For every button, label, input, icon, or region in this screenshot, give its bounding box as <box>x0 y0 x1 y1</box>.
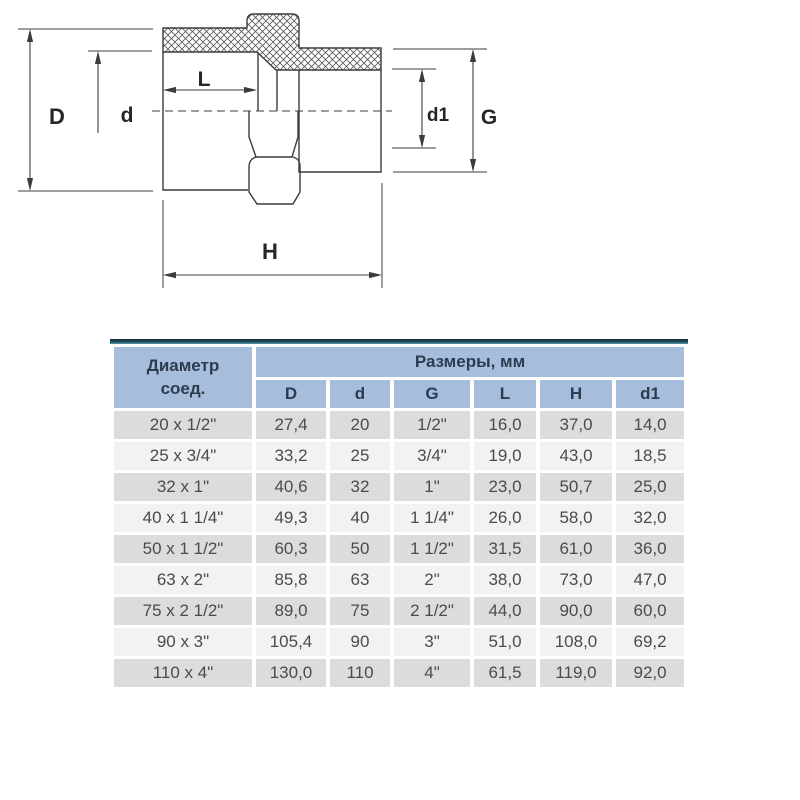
value-cell: 92,0 <box>616 659 684 687</box>
dim-label-D: D <box>49 104 65 129</box>
value-cell: 44,0 <box>474 597 536 625</box>
value-cell: 25,0 <box>616 473 684 501</box>
column-header-L: L <box>474 380 536 408</box>
diameter-header-line1: Диаметр <box>147 356 220 375</box>
value-cell: 1 1/4" <box>394 504 470 532</box>
size-cell: 63 x 2" <box>114 566 252 594</box>
value-cell: 1 1/2" <box>394 535 470 563</box>
size-cell: 20 x 1/2" <box>114 411 252 439</box>
size-cell: 40 x 1 1/4" <box>114 504 252 532</box>
value-cell: 85,8 <box>256 566 326 594</box>
size-cell: 50 x 1 1/2" <box>114 535 252 563</box>
column-group-header-sizes: Размеры, мм <box>256 347 684 377</box>
column-header-G: G <box>394 380 470 408</box>
value-cell: 119,0 <box>540 659 612 687</box>
table-row: 75 x 2 1/2"89,0752 1/2"44,090,060,0 <box>114 597 684 625</box>
value-cell: 63 <box>330 566 390 594</box>
value-cell: 23,0 <box>474 473 536 501</box>
value-cell: 110 <box>330 659 390 687</box>
diameter-header-line2: соед. <box>161 379 206 398</box>
table-body: 20 x 1/2"27,4201/2"16,037,014,025 x 3/4"… <box>114 411 684 687</box>
size-cell: 110 x 4" <box>114 659 252 687</box>
value-cell: 60,3 <box>256 535 326 563</box>
value-cell: 32 <box>330 473 390 501</box>
value-cell: 40,6 <box>256 473 326 501</box>
dimensions-table: Диаметр соед. Размеры, мм D d G L H d1 2… <box>110 339 688 690</box>
product-spec-sheet: D d L d1 <box>0 0 800 800</box>
value-cell: 18,5 <box>616 442 684 470</box>
value-cell: 51,0 <box>474 628 536 656</box>
dimensions-data-table: Диаметр соед. Размеры, мм D d G L H d1 2… <box>110 344 688 690</box>
value-cell: 26,0 <box>474 504 536 532</box>
value-cell: 14,0 <box>616 411 684 439</box>
value-cell: 43,0 <box>540 442 612 470</box>
dim-label-L: L <box>198 68 211 91</box>
value-cell: 47,0 <box>616 566 684 594</box>
value-cell: 49,3 <box>256 504 326 532</box>
dimension-H <box>163 183 382 288</box>
dim-label-d1: d1 <box>427 105 450 126</box>
value-cell: 25 <box>330 442 390 470</box>
table-row: 90 x 3"105,4903"51,0108,069,2 <box>114 628 684 656</box>
column-header-diameter: Диаметр соед. <box>114 347 252 408</box>
table-row: 63 x 2"85,8632"38,073,047,0 <box>114 566 684 594</box>
value-cell: 27,4 <box>256 411 326 439</box>
value-cell: 40 <box>330 504 390 532</box>
value-cell: 130,0 <box>256 659 326 687</box>
value-cell: 61,5 <box>474 659 536 687</box>
size-cell: 32 x 1" <box>114 473 252 501</box>
value-cell: 20 <box>330 411 390 439</box>
value-cell: 50,7 <box>540 473 612 501</box>
value-cell: 1" <box>394 473 470 501</box>
value-cell: 2" <box>394 566 470 594</box>
value-cell: 108,0 <box>540 628 612 656</box>
dim-label-H: H <box>262 239 278 264</box>
table-row: 20 x 1/2"27,4201/2"16,037,014,0 <box>114 411 684 439</box>
value-cell: 2 1/2" <box>394 597 470 625</box>
value-cell: 58,0 <box>540 504 612 532</box>
value-cell: 90,0 <box>540 597 612 625</box>
value-cell: 90 <box>330 628 390 656</box>
column-header-d: d <box>330 380 390 408</box>
value-cell: 33,2 <box>256 442 326 470</box>
size-cell: 75 x 2 1/2" <box>114 597 252 625</box>
value-cell: 69,2 <box>616 628 684 656</box>
value-cell: 37,0 <box>540 411 612 439</box>
value-cell: 16,0 <box>474 411 536 439</box>
value-cell: 50 <box>330 535 390 563</box>
value-cell: 38,0 <box>474 566 536 594</box>
value-cell: 75 <box>330 597 390 625</box>
dim-label-G: G <box>481 106 497 129</box>
column-header-d1: d1 <box>616 380 684 408</box>
table-header-row-1: Диаметр соед. Размеры, мм <box>114 347 684 377</box>
table-row: 32 x 1"40,6321"23,050,725,0 <box>114 473 684 501</box>
column-header-D: D <box>256 380 326 408</box>
size-cell: 25 x 3/4" <box>114 442 252 470</box>
value-cell: 105,4 <box>256 628 326 656</box>
value-cell: 1/2" <box>394 411 470 439</box>
knurled-surface <box>163 14 381 70</box>
table-row: 110 x 4"130,01104"61,5119,092,0 <box>114 659 684 687</box>
value-cell: 3" <box>394 628 470 656</box>
value-cell: 36,0 <box>616 535 684 563</box>
fitting-body-outline <box>163 52 381 204</box>
value-cell: 32,0 <box>616 504 684 532</box>
table-row: 50 x 1 1/2"60,3501 1/2"31,561,036,0 <box>114 535 684 563</box>
value-cell: 60,0 <box>616 597 684 625</box>
value-cell: 73,0 <box>540 566 612 594</box>
value-cell: 61,0 <box>540 535 612 563</box>
fitting-technical-drawing: D d L d1 <box>0 0 500 310</box>
size-cell: 90 x 3" <box>114 628 252 656</box>
value-cell: 3/4" <box>394 442 470 470</box>
value-cell: 89,0 <box>256 597 326 625</box>
value-cell: 4" <box>394 659 470 687</box>
value-cell: 31,5 <box>474 535 536 563</box>
dim-label-d: d <box>121 104 134 127</box>
table-row: 40 x 1 1/4"49,3401 1/4"26,058,032,0 <box>114 504 684 532</box>
value-cell: 19,0 <box>474 442 536 470</box>
column-header-H: H <box>540 380 612 408</box>
table-row: 25 x 3/4"33,2253/4"19,043,018,5 <box>114 442 684 470</box>
